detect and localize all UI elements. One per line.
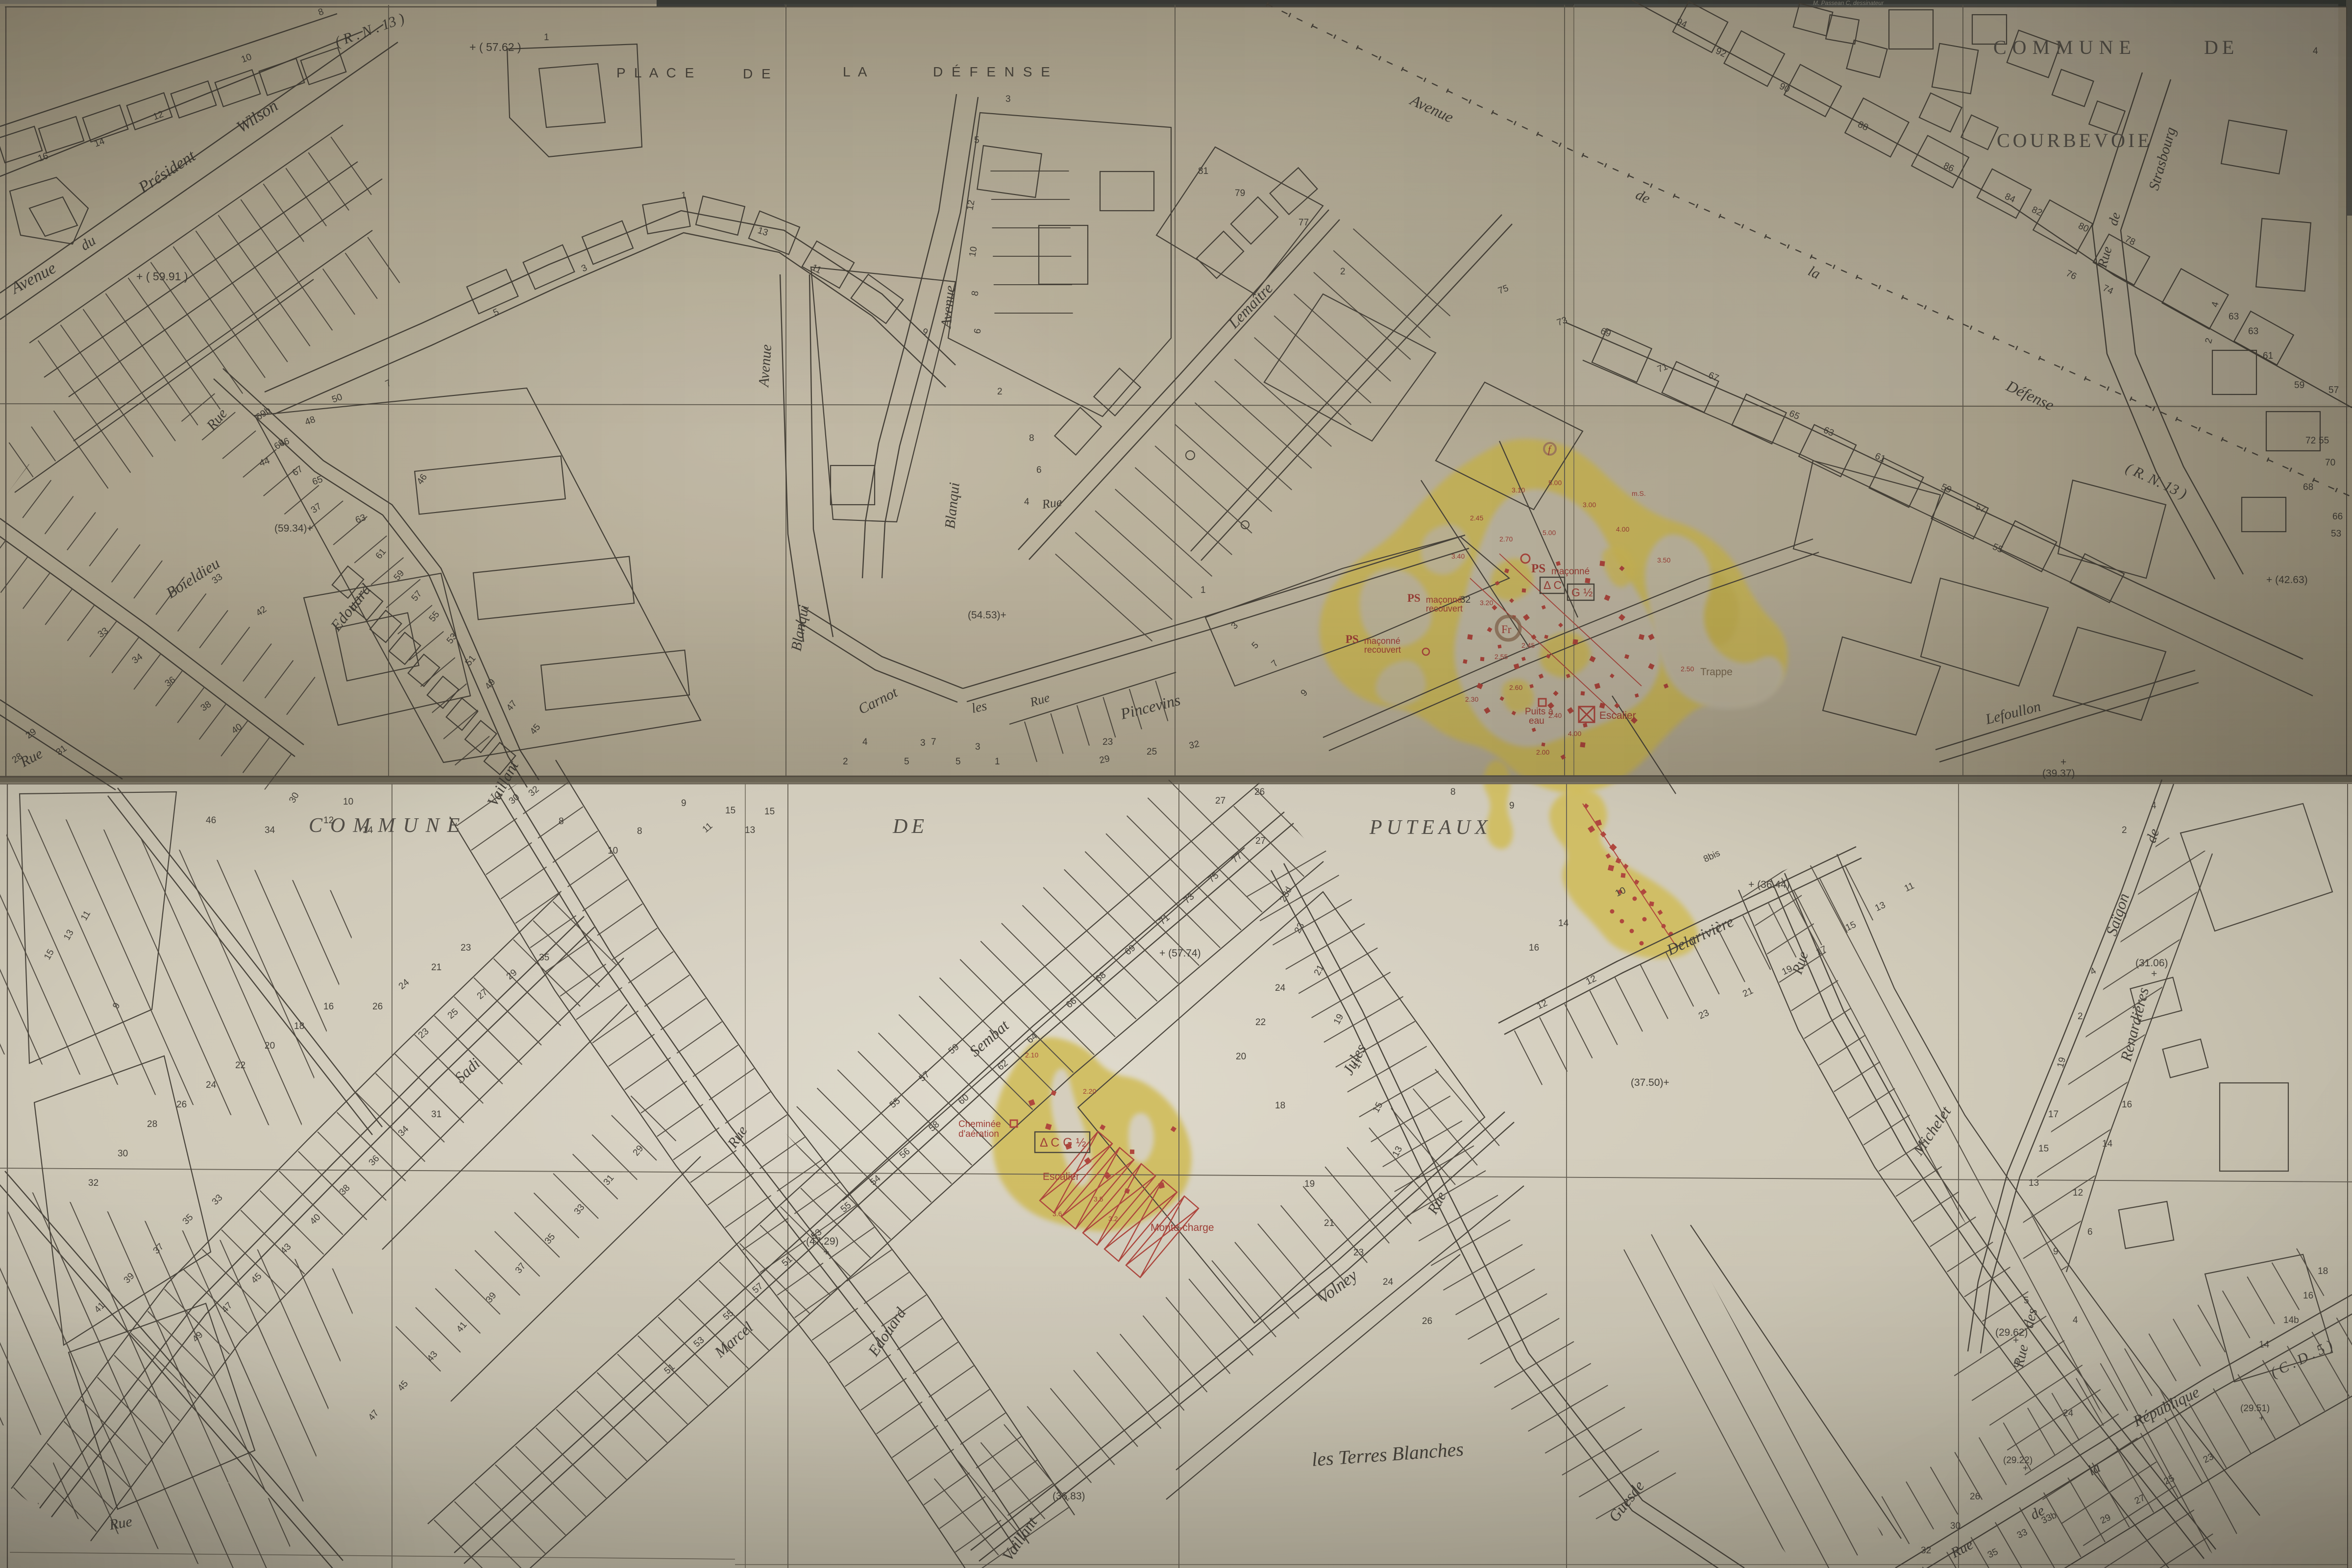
svg-text:21: 21 (1324, 1218, 1334, 1228)
svg-text:2.45: 2.45 (1470, 514, 1483, 522)
svg-text:DE: DE (2204, 36, 2238, 58)
svg-text:10: 10 (967, 245, 979, 257)
svg-text:10: 10 (343, 797, 353, 807)
svg-text:2: 2 (2078, 1011, 2083, 1022)
svg-text:3: 3 (1005, 94, 1011, 104)
svg-text:(59.34)+: (59.34)+ (274, 523, 313, 534)
svg-text:d'aération: d'aération (958, 1129, 999, 1139)
svg-text:9: 9 (1509, 801, 1515, 811)
svg-text:53: 53 (2331, 529, 2341, 539)
svg-text:23: 23 (461, 943, 471, 953)
svg-text:3.2: 3.2 (1108, 1215, 1118, 1223)
svg-text:5.00: 5.00 (1548, 479, 1562, 487)
svg-text:72: 72 (2305, 436, 2316, 446)
svg-text:59: 59 (2294, 380, 2304, 391)
svg-text:28: 28 (147, 1119, 157, 1129)
svg-text:46: 46 (206, 815, 216, 826)
svg-text:3.50: 3.50 (1657, 556, 1670, 564)
svg-text:P L A C E: P L A C E (616, 65, 696, 80)
svg-text:2.70: 2.70 (1499, 535, 1513, 543)
svg-text:3.6: 3.6 (1053, 1210, 1062, 1218)
svg-text:32: 32 (88, 1178, 98, 1188)
svg-text:20: 20 (265, 1041, 275, 1051)
svg-text:18: 18 (1275, 1101, 1285, 1111)
svg-text:79: 79 (1235, 188, 1245, 198)
svg-text:61: 61 (2263, 351, 2273, 361)
svg-text:26: 26 (372, 1002, 383, 1012)
svg-text:27: 27 (1215, 796, 1225, 806)
svg-text:14: 14 (363, 825, 373, 835)
svg-text:66: 66 (2332, 512, 2343, 522)
svg-text:5: 5 (974, 135, 980, 146)
svg-text:Δ C G ½: Δ C G ½ (1040, 1136, 1086, 1150)
svg-text:13: 13 (745, 825, 755, 835)
svg-text:3.10: 3.10 (1512, 486, 1525, 494)
svg-text:(37.50)+: (37.50)+ (1631, 1077, 1669, 1088)
svg-text:1: 1 (681, 191, 686, 201)
svg-text:16: 16 (1529, 943, 1539, 953)
svg-text:70: 70 (2325, 458, 2335, 468)
svg-text:10: 10 (608, 846, 618, 856)
svg-text:+: + (823, 1247, 829, 1258)
svg-text:D É F E N S E: D É F E N S E (933, 64, 1053, 79)
svg-text:20: 20 (1236, 1052, 1246, 1062)
svg-text:34: 34 (265, 825, 275, 835)
svg-text:Avenue: Avenue (756, 344, 775, 389)
svg-text:m.S.: m.S. (1632, 490, 1646, 497)
svg-text:Monte-charge: Monte-charge (1151, 1222, 1214, 1233)
svg-text:6: 6 (1036, 465, 1042, 475)
svg-text:26: 26 (176, 1100, 187, 1110)
svg-text:31: 31 (431, 1109, 441, 1120)
svg-text:35: 35 (539, 953, 549, 963)
svg-text:26: 26 (1422, 1316, 1432, 1326)
svg-text:16: 16 (2122, 1100, 2132, 1110)
svg-text:8: 8 (1029, 433, 1034, 443)
svg-text:4.00: 4.00 (1616, 525, 1629, 533)
svg-text:9: 9 (681, 798, 686, 808)
svg-text:4: 4 (2313, 46, 2318, 56)
svg-text:2.10: 2.10 (1025, 1051, 1038, 1059)
svg-text:Escalier: Escalier (1043, 1171, 1079, 1182)
svg-text:4: 4 (1024, 497, 1029, 507)
svg-text:(47.29): (47.29) (806, 1236, 839, 1247)
svg-text:DE: DE (892, 815, 928, 838)
svg-text:2: 2 (2122, 825, 2127, 835)
svg-text:3.40: 3.40 (1451, 552, 1465, 560)
svg-text:21: 21 (431, 962, 441, 973)
svg-text:L A: L A (843, 64, 869, 79)
svg-text:23: 23 (1353, 1248, 1364, 1258)
svg-text:22: 22 (235, 1060, 245, 1071)
svg-text:12: 12 (965, 199, 977, 211)
svg-text:14: 14 (1558, 918, 1569, 929)
svg-text:8: 8 (559, 816, 564, 827)
svg-text:63: 63 (2248, 326, 2258, 337)
svg-text:57: 57 (2328, 385, 2339, 395)
svg-text:3.5: 3.5 (1094, 1195, 1103, 1203)
svg-text:16: 16 (323, 1002, 334, 1012)
svg-text:5.00: 5.00 (1543, 529, 1556, 537)
svg-text:12: 12 (323, 815, 334, 826)
svg-text:15: 15 (725, 806, 735, 816)
svg-text:4: 4 (2151, 801, 2156, 811)
svg-text:24: 24 (1383, 1277, 1394, 1287)
svg-text:19: 19 (1304, 1179, 1315, 1189)
svg-text:COMMUNE: COMMUNE (1993, 36, 2137, 58)
svg-text:Cheminée: Cheminée (958, 1119, 1001, 1129)
svg-text:Rue: Rue (1041, 495, 1063, 512)
svg-text:24: 24 (1275, 983, 1286, 993)
svg-text:26: 26 (1254, 787, 1265, 797)
svg-text:22: 22 (1255, 1017, 1266, 1028)
svg-text:2: 2 (997, 387, 1003, 397)
svg-text:1: 1 (544, 32, 549, 43)
svg-text:30: 30 (118, 1149, 128, 1159)
svg-text:27: 27 (1255, 836, 1266, 846)
svg-text:+ (57.74): + (57.74) (1159, 948, 1201, 959)
svg-text:PUTEAUX: PUTEAUX (1369, 816, 1492, 839)
svg-text:24: 24 (206, 1080, 217, 1090)
svg-text:2: 2 (1340, 267, 1346, 277)
svg-text:2.20: 2.20 (1083, 1087, 1096, 1095)
svg-text:3.00: 3.00 (1583, 501, 1596, 509)
svg-text:D E: D E (743, 66, 773, 81)
svg-text:18: 18 (294, 1021, 304, 1031)
svg-text:68: 68 (2303, 482, 2313, 492)
svg-text:63: 63 (2229, 312, 2239, 322)
svg-text:COURBEVOIE: COURBEVOIE (1997, 129, 2153, 151)
svg-text:55: 55 (2319, 436, 2329, 446)
svg-text:15: 15 (764, 807, 775, 817)
svg-text:8: 8 (1450, 787, 1456, 797)
svg-text:8: 8 (637, 826, 642, 836)
